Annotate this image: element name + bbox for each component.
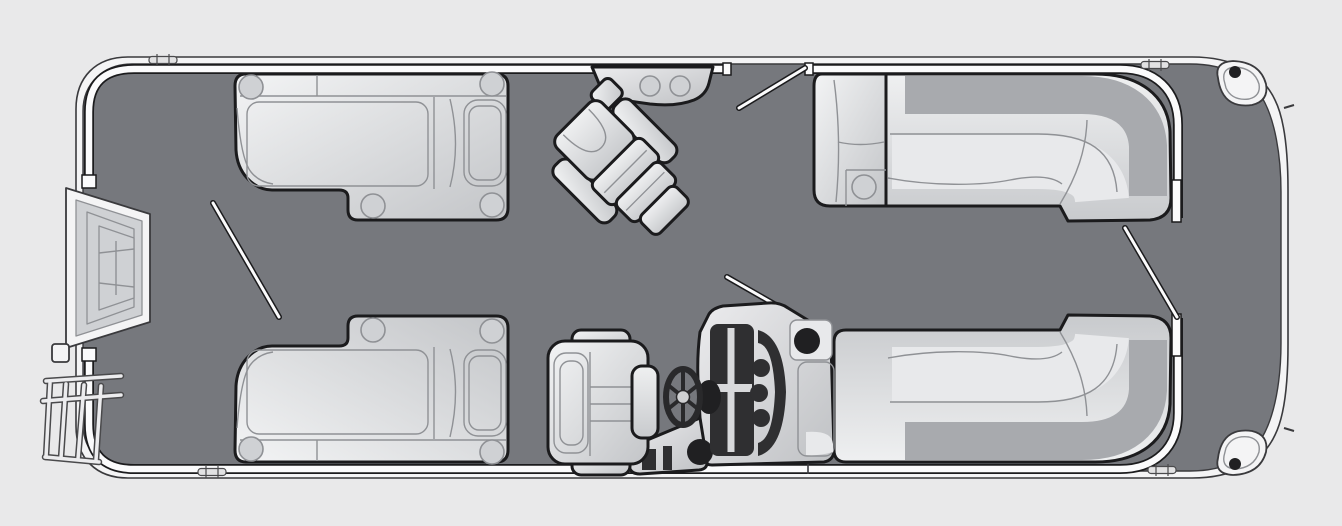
port-bow-l-lounge xyxy=(814,74,1171,221)
helm-chair-footrest xyxy=(632,366,658,438)
gate-post-bow-bottom xyxy=(1172,314,1181,356)
helm-cup-holder xyxy=(794,328,820,354)
floorplan-stage xyxy=(0,0,1342,526)
gate-post-bow-top xyxy=(1172,180,1181,222)
wing-cup-holder xyxy=(687,439,713,465)
stern-entry-steps xyxy=(66,188,150,348)
gate-post-port-left xyxy=(723,63,731,75)
fence-hinge-stern-top xyxy=(82,175,96,188)
floorplan-svg xyxy=(0,0,1342,526)
starboard-bow-l-lounge xyxy=(834,315,1171,462)
helm-chair xyxy=(548,330,658,475)
fence-hinge-stern-bottom xyxy=(82,348,96,361)
